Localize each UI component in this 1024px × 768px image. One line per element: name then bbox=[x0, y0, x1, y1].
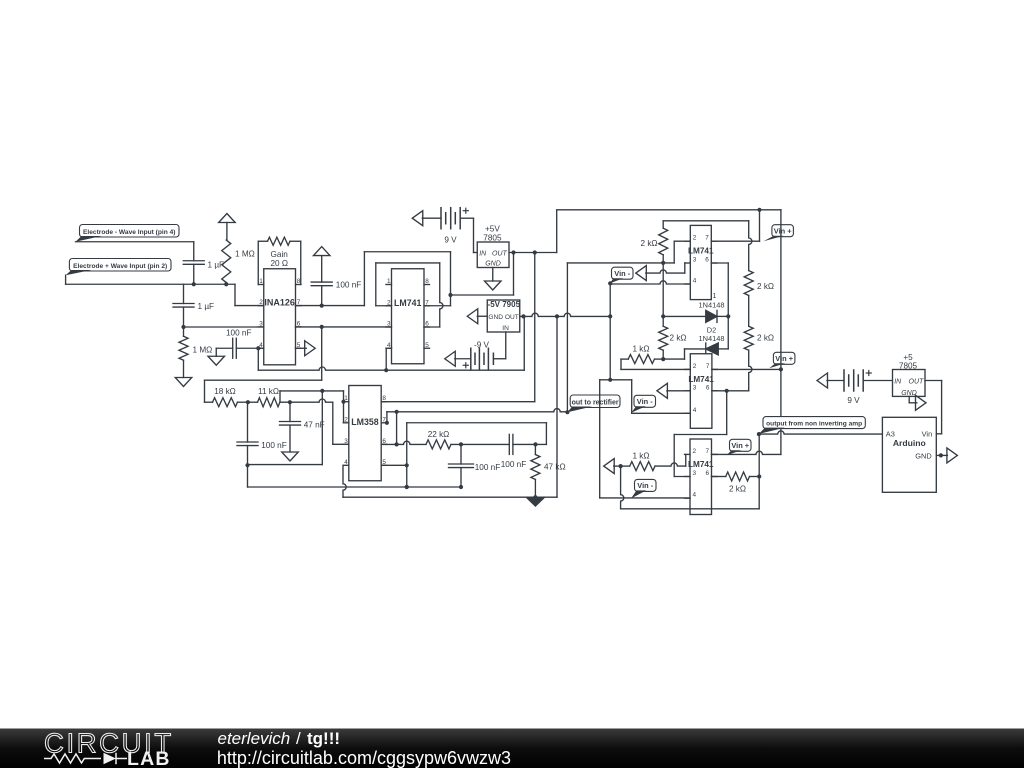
svg-text:LAB: LAB bbox=[127, 748, 171, 768]
svg-text:-5V 7905: -5V 7905 bbox=[488, 300, 521, 309]
svg-text:4: 4 bbox=[693, 407, 697, 414]
svg-text:100 nF: 100 nF bbox=[475, 463, 501, 472]
svg-text:100 nF: 100 nF bbox=[226, 329, 252, 338]
svg-text:OUT: OUT bbox=[492, 250, 508, 257]
svg-text:4: 4 bbox=[693, 492, 697, 499]
svg-text:7805: 7805 bbox=[899, 362, 918, 371]
svg-text:2: 2 bbox=[259, 299, 263, 306]
svg-text:6: 6 bbox=[706, 384, 710, 391]
svg-text:LM741: LM741 bbox=[394, 298, 421, 308]
svg-text:2: 2 bbox=[693, 363, 697, 370]
svg-text:INA126: INA126 bbox=[264, 297, 295, 307]
svg-text:http://circuitlab.com/cggsypw6: http://circuitlab.com/cggsypw6vwzw3 bbox=[217, 748, 511, 768]
svg-text:1 MΩ: 1 MΩ bbox=[235, 250, 255, 259]
svg-text:IN: IN bbox=[479, 250, 487, 257]
svg-text:1N4148: 1N4148 bbox=[699, 334, 725, 343]
svg-text:3: 3 bbox=[693, 257, 697, 264]
svg-text:9 V: 9 V bbox=[847, 396, 860, 405]
svg-text:D2: D2 bbox=[707, 325, 716, 334]
svg-text:1 MΩ: 1 MΩ bbox=[193, 346, 213, 355]
svg-text:7: 7 bbox=[425, 299, 429, 306]
svg-text:1: 1 bbox=[713, 293, 717, 300]
svg-text:6: 6 bbox=[705, 470, 709, 477]
svg-text:4: 4 bbox=[693, 278, 697, 285]
svg-text:Vin +: Vin + bbox=[774, 227, 792, 236]
svg-text:Electrode - Wave Input (pin 4): Electrode - Wave Input (pin 4) bbox=[83, 229, 175, 236]
svg-text:LM741: LM741 bbox=[688, 375, 714, 384]
svg-text:47 kΩ: 47 kΩ bbox=[544, 463, 566, 472]
svg-text:4: 4 bbox=[259, 342, 263, 349]
svg-text:Vin -: Vin - bbox=[637, 397, 653, 406]
svg-text:IN: IN bbox=[894, 378, 902, 385]
svg-text:1N4148: 1N4148 bbox=[699, 301, 725, 310]
svg-text:3: 3 bbox=[693, 384, 697, 391]
svg-text:7805: 7805 bbox=[483, 234, 502, 243]
svg-text:1: 1 bbox=[387, 278, 391, 285]
svg-text:Electrode + Wave Input (pin 2): Electrode + Wave Input (pin 2) bbox=[73, 263, 167, 270]
svg-text:7: 7 bbox=[705, 448, 709, 455]
svg-text:9 V: 9 V bbox=[444, 236, 457, 245]
svg-text:output from non inverting amp: output from non inverting amp bbox=[766, 420, 862, 427]
svg-text:3: 3 bbox=[693, 470, 697, 477]
svg-text:1 kΩ: 1 kΩ bbox=[632, 345, 649, 354]
svg-text:IN: IN bbox=[502, 325, 509, 332]
svg-text:2: 2 bbox=[344, 416, 348, 423]
svg-text:1: 1 bbox=[344, 395, 348, 402]
svg-text:8: 8 bbox=[425, 278, 429, 285]
svg-text:+5V: +5V bbox=[485, 225, 500, 234]
svg-text:eterlevich: eterlevich bbox=[218, 729, 291, 748]
svg-text:LM741: LM741 bbox=[688, 246, 714, 255]
svg-text:/: / bbox=[296, 729, 301, 748]
svg-text:out to rectifier: out to rectifier bbox=[572, 399, 619, 406]
svg-text:100 nF: 100 nF bbox=[261, 441, 287, 450]
svg-text:1: 1 bbox=[259, 278, 263, 285]
svg-text:-9 V: -9 V bbox=[474, 341, 490, 350]
svg-text:Arduino: Arduino bbox=[893, 438, 926, 448]
svg-text:Vin +: Vin + bbox=[775, 354, 793, 363]
svg-text:Vin -: Vin - bbox=[614, 269, 630, 278]
svg-text:2 kΩ: 2 kΩ bbox=[757, 334, 774, 343]
svg-text:2: 2 bbox=[693, 235, 697, 242]
svg-text:+5: +5 bbox=[903, 353, 913, 362]
svg-text:3: 3 bbox=[387, 321, 391, 328]
svg-text:2 kΩ: 2 kΩ bbox=[641, 239, 658, 248]
svg-text:3: 3 bbox=[344, 438, 348, 445]
svg-text:GND: GND bbox=[485, 261, 501, 268]
svg-text:20 Ω: 20 Ω bbox=[270, 259, 288, 268]
svg-text:GND OUT: GND OUT bbox=[488, 314, 518, 321]
svg-text:18 kΩ: 18 kΩ bbox=[214, 387, 236, 396]
svg-text:7: 7 bbox=[705, 235, 709, 242]
svg-text:LM358: LM358 bbox=[351, 417, 378, 427]
svg-text:100 nF: 100 nF bbox=[336, 281, 362, 290]
svg-text:2 kΩ: 2 kΩ bbox=[729, 485, 746, 494]
svg-text:3: 3 bbox=[259, 320, 263, 327]
svg-text:4: 4 bbox=[344, 459, 348, 466]
svg-text:Vin +: Vin + bbox=[731, 441, 749, 450]
svg-text:100 nF: 100 nF bbox=[501, 460, 527, 469]
svg-text:GND: GND bbox=[915, 451, 931, 460]
svg-text:1 µF: 1 µF bbox=[198, 302, 215, 311]
svg-text:Vin -: Vin - bbox=[637, 481, 653, 490]
svg-text:2: 2 bbox=[693, 448, 697, 455]
svg-text:2 kΩ: 2 kΩ bbox=[757, 282, 774, 291]
svg-text:7: 7 bbox=[706, 363, 710, 370]
svg-text:2 kΩ: 2 kΩ bbox=[670, 334, 687, 343]
svg-text:LM741: LM741 bbox=[688, 460, 714, 469]
svg-text:5: 5 bbox=[425, 342, 429, 349]
svg-text:tg!!!: tg!!! bbox=[307, 729, 340, 748]
svg-text:22 kΩ: 22 kΩ bbox=[428, 430, 450, 439]
svg-text:Gain: Gain bbox=[271, 250, 289, 259]
svg-text:OUT: OUT bbox=[909, 378, 925, 385]
svg-text:6: 6 bbox=[705, 257, 709, 264]
svg-text:47 nF: 47 nF bbox=[304, 421, 325, 430]
svg-text:11 kΩ: 11 kΩ bbox=[258, 387, 279, 396]
svg-text:1 kΩ: 1 kΩ bbox=[632, 452, 649, 461]
